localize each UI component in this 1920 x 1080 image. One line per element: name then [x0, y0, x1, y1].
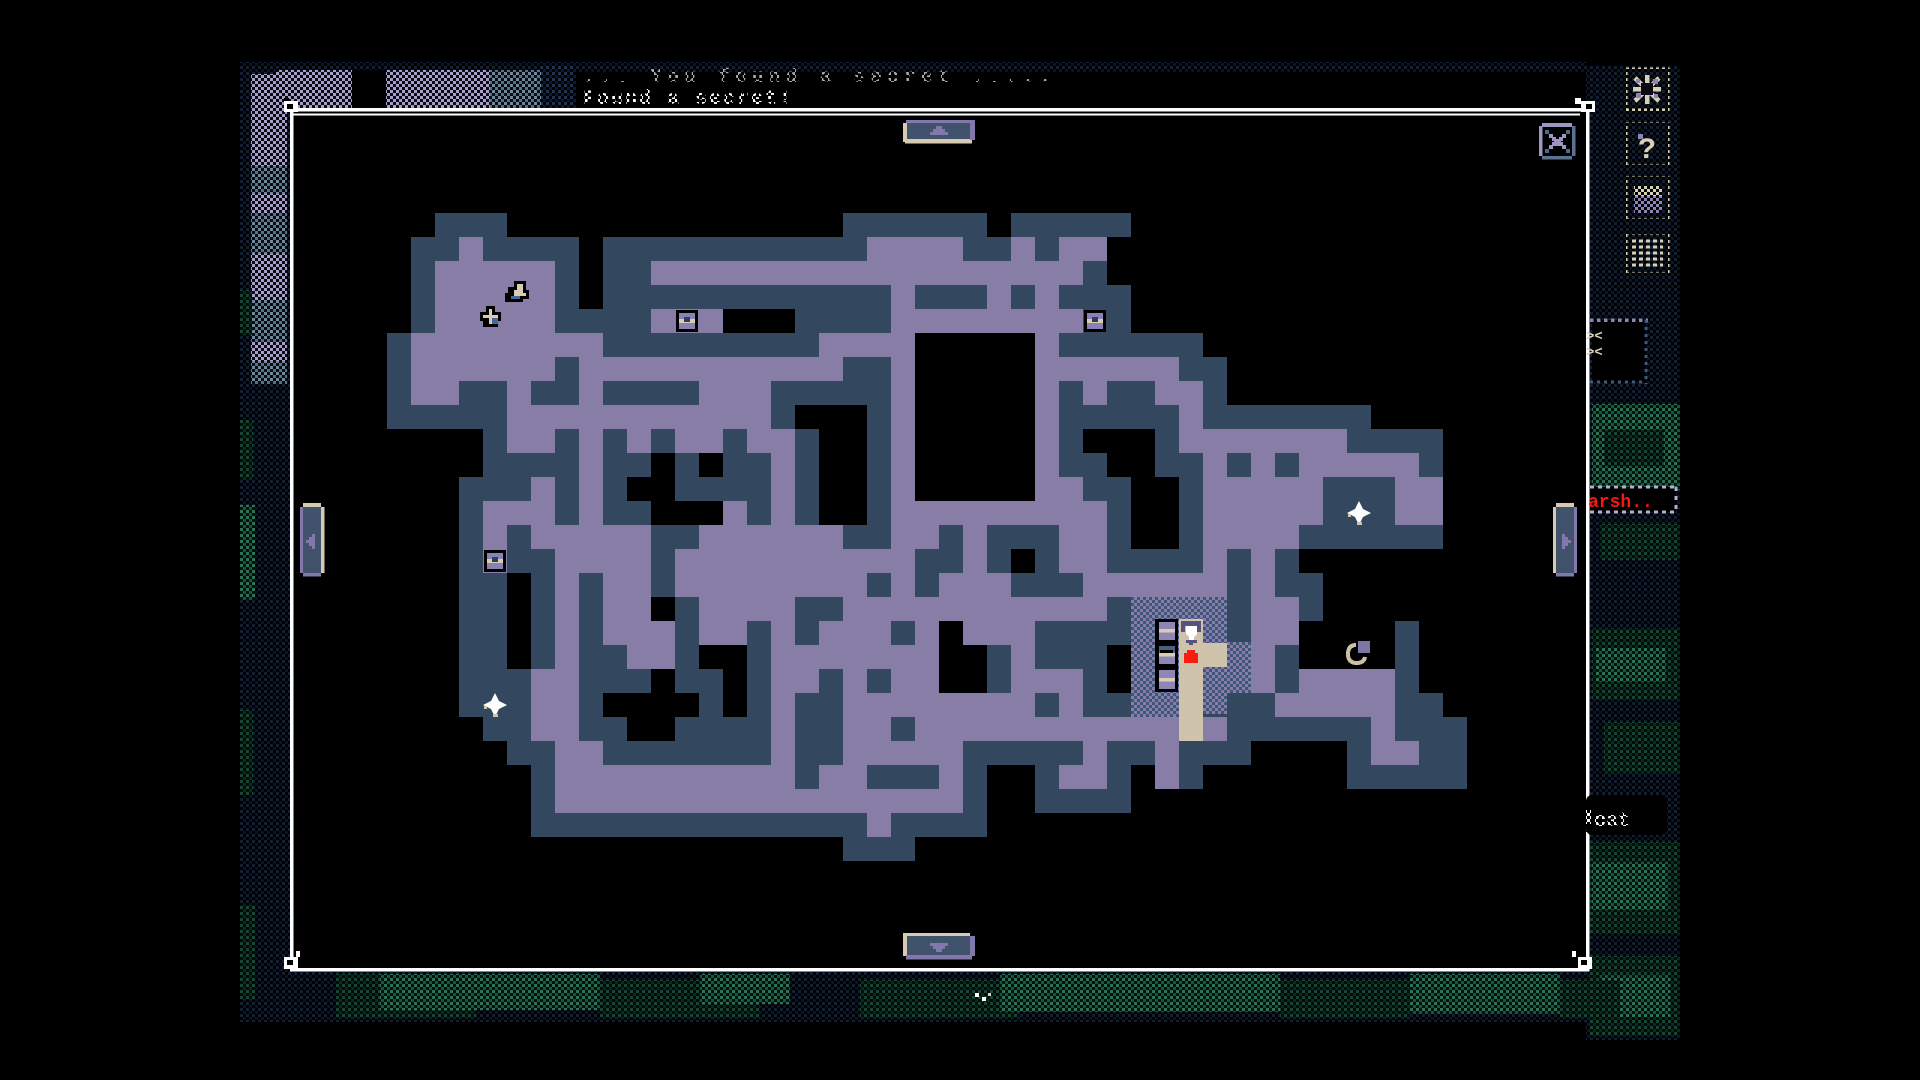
svg-text:><: ><: [1586, 329, 1603, 345]
svg-text:arsh..: arsh..: [1588, 493, 1653, 513]
svg-text:><: ><: [1586, 345, 1603, 361]
svg-text:?: ?: [1638, 134, 1656, 168]
